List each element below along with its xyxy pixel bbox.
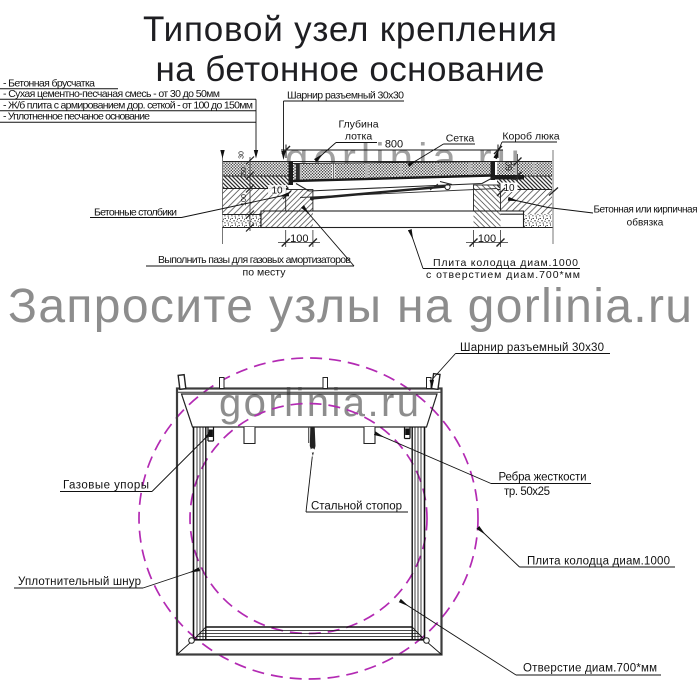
svg-text:с отверстием диам.700*мм: с отверстием диам.700*мм <box>426 269 580 281</box>
svg-text:Сетка: Сетка <box>446 133 475 145</box>
svg-text:на бетонное основание: на бетонное основание <box>156 50 545 89</box>
svg-text:Глубина: Глубина <box>338 119 378 131</box>
svg-text:100: 100 <box>478 233 496 245</box>
svg-text:Типовой узел крепления: Типовой узел крепления <box>143 10 557 49</box>
svg-text:Плита колодца диам.1000: Плита колодца диам.1000 <box>433 257 578 269</box>
svg-text:Выполнить пазы для газовых амо: Выполнить пазы для газовых амортизаторов <box>158 254 351 266</box>
svg-text:тр. 50х25: тр. 50х25 <box>504 486 550 498</box>
svg-text:лотка: лотка <box>345 131 372 143</box>
svg-text:- Уплотненное песчаное основан: - Уплотненное песчаное основание <box>3 111 150 123</box>
svg-text:30: 30 <box>239 151 246 159</box>
svg-text:обвязка: обвязка <box>627 217 664 229</box>
svg-text:60: 60 <box>504 161 514 171</box>
svg-text:- Сухая цементно-песчаная смес: - Сухая цементно-песчаная смесь - от 30 … <box>3 88 220 100</box>
svg-text:Ребра жесткости: Ребра жесткости <box>499 472 587 484</box>
svg-text:10: 10 <box>271 186 283 197</box>
svg-text:Стальной стопор: Стальной стопор <box>311 501 402 513</box>
svg-text:Шарнир разъемный 30х30: Шарнир разъемный 30х30 <box>460 342 604 354</box>
svg-text:Бетонная или кирпичная: Бетонная или кирпичная <box>594 205 698 216</box>
svg-text:50: 50 <box>241 167 248 175</box>
svg-text:100: 100 <box>290 233 308 245</box>
svg-text:по месту: по месту <box>243 267 287 279</box>
svg-text:800: 800 <box>385 139 403 151</box>
svg-text:Бетонные столбики: Бетонные столбики <box>94 207 177 219</box>
svg-text:Короб люка: Короб люка <box>502 131 559 143</box>
svg-text:Уплотнительный шнур: Уплотнительный шнур <box>18 576 141 588</box>
svg-text:Плита колодца диам.1000: Плита колодца диам.1000 <box>527 556 670 568</box>
svg-text:Шарнир разъемный 30х30: Шарнир разъемный 30х30 <box>287 90 404 102</box>
svg-text:Газовые упоры: Газовые упоры <box>63 480 149 492</box>
svg-text:Запросите узлы на gorlinia.ru: Запросите узлы на gorlinia.ru <box>8 280 692 333</box>
svg-text:Отверстие диам.700*мм: Отверстие диам.700*мм <box>523 663 657 675</box>
